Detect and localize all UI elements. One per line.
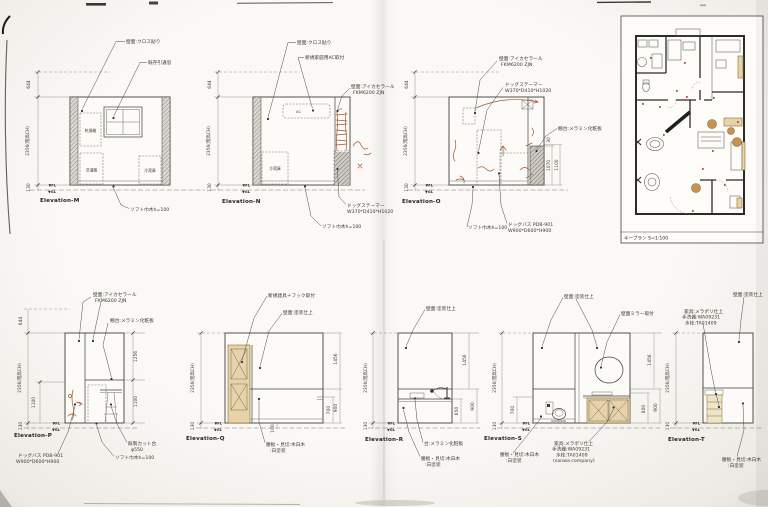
wall-finish-label-1: 壁面:アイカセラール bbox=[93, 291, 137, 298]
dim-700: 700 bbox=[326, 406, 332, 415]
wall-finish-label: 壁面:塗装仕上 bbox=[426, 305, 456, 312]
elevation-m: 644 2356(階高CH) 130 ▼FL ▼GL 乾燥機 洗濯機 冷蔵庫 壁… bbox=[24, 38, 205, 213]
dim-130: 130 bbox=[207, 183, 213, 192]
baseboard-label: ソフト巾木h=100 bbox=[130, 206, 169, 213]
dim-900: 900 bbox=[333, 404, 339, 413]
fl-mark: ▼FL bbox=[214, 422, 222, 426]
fl-mark: ▼FL bbox=[52, 422, 60, 426]
dim-130: 130 bbox=[492, 422, 498, 431]
elevation-o: 644 2356(階高CH) 130 30 1070 1100 ▼FL ▼GL … bbox=[402, 55, 602, 234]
elevation-title: Elevation-M bbox=[40, 198, 80, 204]
dim-130: 130 bbox=[363, 422, 369, 431]
elevation-title: Elevation-T bbox=[668, 437, 705, 443]
dogbath-label-2: W900*D600*H900 bbox=[16, 459, 59, 465]
counter-label: 台:メラミン化粧板 bbox=[424, 440, 463, 447]
fixture-label-2: 手洗器:WA09231 bbox=[682, 314, 720, 321]
fl-mark: ▼FL bbox=[522, 422, 530, 426]
dim-1256: 1256 bbox=[133, 351, 139, 362]
dim-700-left: 700 bbox=[510, 406, 516, 415]
elevation-title: Elevation-Q bbox=[186, 436, 225, 442]
shelf-label: 棚台:メラミン化粧板 bbox=[558, 125, 602, 132]
fixture-label-1: 家具:メラポリ仕上 bbox=[554, 440, 593, 447]
dim-height: 2356(階高CH) bbox=[362, 363, 369, 393]
dogbath-label-2: W900*D600*H900 bbox=[508, 228, 551, 234]
gl-mark: ▼GL bbox=[214, 428, 223, 432]
wall-finish-label: 壁面:塗装仕上 bbox=[564, 293, 594, 300]
wall-hatch-left bbox=[253, 97, 261, 185]
wainscot-label-2: :白塗装 bbox=[270, 447, 286, 454]
fridge-label: 冷蔵庫 bbox=[269, 166, 281, 171]
wall-finish-label: 壁面:塗装仕上 bbox=[283, 309, 313, 316]
wall-finish-label-2: FKM6200 ZJN bbox=[95, 298, 127, 304]
dim-height: 2356(階高CH) bbox=[16, 363, 23, 393]
fixture-label-3: 水栓:TA01409 bbox=[685, 319, 717, 326]
cut-table-label-1: 既製カット台 bbox=[128, 440, 156, 447]
elevation-title: Elevation-N bbox=[222, 199, 261, 205]
mirror-label: 壁面ミラー取付 bbox=[621, 310, 654, 317]
dim-1100: 1100 bbox=[554, 159, 560, 170]
wall-finish-label: 壁面:クロス貼り bbox=[126, 38, 160, 45]
dim-800: 800 bbox=[641, 405, 647, 414]
elevation-n: 644 2356(階高CH) 130 ▼FL ▼GL AC 冷蔵庫 壁面:クロス… bbox=[205, 39, 395, 230]
dim-1456: 1456 bbox=[462, 354, 468, 365]
fixture-label-3: 水栓:TA01409 bbox=[556, 451, 588, 458]
dim-644: 644 bbox=[207, 80, 213, 89]
dim-130: 130 bbox=[404, 183, 410, 192]
wall-hatch-right bbox=[162, 97, 170, 185]
fixture-label-2: 手洗器:WA09231 bbox=[552, 446, 590, 453]
dim-130: 130 bbox=[190, 422, 196, 431]
elevation-p: 644 2356(階高CH) 1100 130 1256 1100 ▼FL ▼G… bbox=[14, 291, 156, 465]
dim-900: 900 bbox=[470, 402, 476, 411]
fridge-label: 冷蔵庫 bbox=[144, 168, 156, 173]
drawing-sheet: 644 2356(階高CH) 130 ▼FL ▼GL 乾燥機 洗濯機 冷蔵庫 壁… bbox=[0, 0, 768, 507]
cut-table-label-2: φ550 bbox=[131, 447, 143, 453]
elevation-title: Elevation-O bbox=[402, 199, 441, 205]
dim-130: 130 bbox=[665, 422, 671, 431]
dim-1100-right: 1100 bbox=[133, 396, 139, 407]
fixture-label-4: (sanwa company) bbox=[553, 458, 595, 464]
wainscot-label-1: 腰板・見切:木白木 bbox=[722, 456, 761, 463]
ac-mount-label: 新規家庭用AC取付 bbox=[305, 54, 345, 61]
wash-cabinet bbox=[705, 390, 723, 423]
door bbox=[228, 345, 252, 423]
steamer-label-2: W370*D410*H1020 bbox=[505, 88, 551, 94]
gl-mark: ▼GL bbox=[425, 190, 434, 194]
ac-label: AC bbox=[296, 109, 302, 114]
fl-mark: ▼FL bbox=[425, 184, 433, 188]
baseboard-label: ソフト巾木h=100 bbox=[322, 223, 361, 230]
gl-mark: ▼GL bbox=[52, 428, 61, 432]
washer-label: 洗濯機 bbox=[86, 168, 98, 173]
fl-mark: ▼FL bbox=[692, 422, 700, 426]
wainscot-label-1: 腰板・見切:木白木 bbox=[421, 455, 460, 462]
shelf-label: 棚台:メラミン化粧板 bbox=[110, 317, 154, 324]
dim-height: 2356(階高CH) bbox=[402, 126, 409, 156]
dim-130: 130 bbox=[26, 183, 32, 192]
wainscot-label-2: :白塗装 bbox=[425, 461, 441, 468]
dim-644: 644 bbox=[404, 80, 410, 89]
dim-900: 900 bbox=[653, 403, 659, 412]
door-label: 新規建具＋フック取付 bbox=[268, 292, 315, 299]
wall-finish-label: 壁面:クロス貼り bbox=[297, 39, 331, 46]
dim-height: 2356(階高CH) bbox=[664, 363, 671, 393]
gl-mark: ▼GL bbox=[48, 190, 57, 194]
wainscot-label-2: :白塗装 bbox=[506, 457, 522, 464]
dim-644: 644 bbox=[26, 80, 32, 89]
key-plan: キープラン S=1:100 bbox=[621, 16, 763, 243]
gl-mark: ▼GL bbox=[242, 190, 251, 194]
dogbath-label-1: ドッグバス PDB-901 bbox=[508, 221, 553, 228]
fl-mark: ▼FL bbox=[242, 184, 250, 188]
dim-height: 2356(階高CH) bbox=[491, 363, 498, 393]
dim-height: 2356(階高CH) bbox=[24, 126, 31, 156]
dim-1456: 1456 bbox=[333, 353, 339, 364]
elevation-title: Elevation-S bbox=[484, 436, 522, 442]
wainscot-label-1: 腰板・見切:木白木 bbox=[500, 451, 539, 458]
wainscot-label-1: 腰板・見切:木白木 bbox=[266, 441, 305, 448]
steamer-label-1: ドッグステーマー bbox=[505, 81, 543, 88]
sheet-svg: 644 2356(階高CH) 130 ▼FL ▼GL 乾燥機 洗濯機 冷蔵庫 壁… bbox=[0, 0, 768, 507]
dim-1456: 1456 bbox=[647, 354, 653, 365]
dim-100: 100 bbox=[270, 424, 276, 433]
wall-finish-label-1: 壁面:アイカセラール bbox=[499, 55, 543, 62]
elevation-s: 2356(階高CH) 700 130 700 30 670 1000 1456 … bbox=[484, 293, 662, 464]
dim-1070: 1070 bbox=[546, 160, 552, 171]
wall-finish-label-2: FKM6200 ZJN bbox=[501, 62, 533, 68]
gl-mark: ▼GL bbox=[692, 428, 701, 432]
key-plan-label: キープラン S=1:100 bbox=[624, 236, 668, 242]
elevation-title: Elevation-P bbox=[14, 433, 52, 439]
dim-1100-left: 1100 bbox=[31, 397, 37, 408]
dogbath-label-1: ドッグバス PDB-901 bbox=[18, 452, 63, 459]
dim-height: 2356(階高CH) bbox=[189, 363, 196, 393]
wainscot-label-2: :白塗装 bbox=[728, 462, 744, 469]
dim-height: 2356(階高CH) bbox=[205, 126, 212, 156]
elevation-t: 2356(階高CH) 130 ▼FL ▼GL 壁面:塗装仕上 家具:メラポリ仕上… bbox=[664, 291, 763, 469]
wall-hatch-left bbox=[70, 97, 78, 185]
window-label: 既存引違窓 bbox=[148, 59, 172, 66]
dim-644: 644 bbox=[18, 317, 24, 326]
dim-130: 130 bbox=[18, 422, 24, 431]
dim-30: 30 bbox=[546, 137, 552, 143]
elevation-q: 2356(階高CH) 130 30 2000 30 770 100 1456 7… bbox=[186, 292, 345, 454]
gl-mark: ▼GL bbox=[522, 428, 531, 432]
fl-mark: ▼FL bbox=[48, 184, 56, 188]
baseboard-label: ソフト巾木h=100 bbox=[115, 454, 154, 461]
dim-650: 650 bbox=[454, 407, 460, 416]
fixture-label-1: 家具:メラポリ仕上 bbox=[684, 308, 723, 315]
dryer-label: 乾燥機 bbox=[85, 128, 97, 133]
baseboard-label: ソフト巾木h=100 bbox=[468, 224, 507, 231]
